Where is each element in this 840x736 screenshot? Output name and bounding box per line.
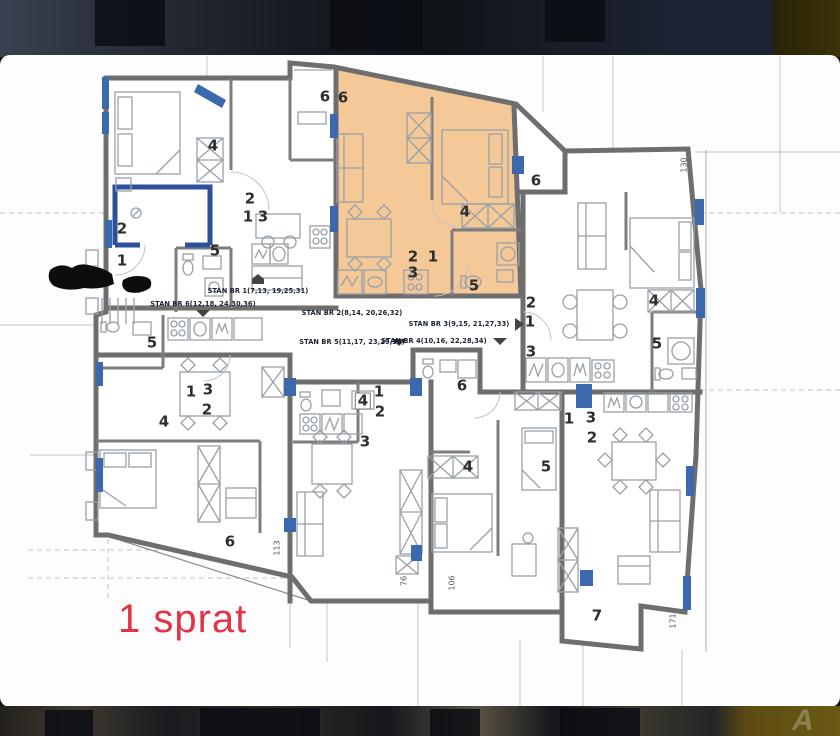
apartment-label-stan-5: STAN BR 5(11,17, 23,29,35) [299,338,404,346]
room-number: 2 [408,250,418,265]
room-number: 1 [117,254,127,269]
dimension-label: 113 [273,540,282,555]
apartment-label-stan-1: STAN BR 1(7,13, 19,25,31) [208,287,309,295]
photo-window [430,709,480,736]
dimension-label: 171 [669,613,678,628]
room-number: 5 [147,336,157,351]
room-number: 1 [243,210,253,225]
room-number: 6 [338,91,348,106]
room-number: 3 [258,210,268,225]
room-number: 2 [245,192,255,207]
room-number: 2 [587,431,597,446]
dimension-label: 106 [448,575,457,590]
apartment-label-stan-3: STAN BR 3(9,15, 21,27,33) [409,320,510,328]
dimension-label: 76 [400,576,409,586]
photo-window [200,708,320,736]
room-number: 5 [210,244,220,259]
dimension-label: 130 [680,157,689,172]
photo-watermark-letter: A [792,704,814,736]
room-number: 5 [652,337,662,352]
room-number: 1 [374,385,384,400]
room-number: 2 [375,405,385,420]
room-number: 1 [186,385,196,400]
room-number: 5 [541,460,551,475]
room-number: 2 [526,296,536,311]
photo-window [45,710,93,736]
room-number: 3 [360,435,370,450]
room-number: 4 [208,139,218,154]
room-number: 4 [355,393,371,410]
room-number: 6 [225,535,235,550]
room-number: 1 [564,412,574,427]
room-number: 6 [320,90,330,105]
room-number: 4 [649,294,659,309]
room-number: 4 [159,415,169,430]
room-number: 1 [428,250,438,265]
room-number: 3 [203,383,213,398]
room-number: 6 [531,174,541,189]
room-number: 3 [586,411,596,426]
room-number: 3 [408,266,418,281]
apartment-label-stan-2: STAN BR 2(8,14, 20,26,32) [302,309,403,317]
building-photo-bottom-strip [0,706,840,736]
apartment-label-stan-6: STAN BR 6(12,18, 24,30,36) [150,300,255,308]
room-number: 1 [525,315,535,330]
room-number: 2 [117,222,127,237]
screenshot-canvas: 6 6 4 2 1 3 2 1 5 4 2 1 3 5 6 2 1 3 4 5 … [0,0,840,736]
room-number: 7 [592,609,602,624]
room-number: 6 [457,379,467,394]
room-number: 4 [460,205,470,220]
floor-title: 1 sprat [118,597,247,642]
room-number: 5 [469,279,479,294]
room-number: 4 [463,460,473,475]
room-number: 3 [526,345,536,360]
photo-window [560,708,640,736]
room-number: 2 [202,403,212,418]
